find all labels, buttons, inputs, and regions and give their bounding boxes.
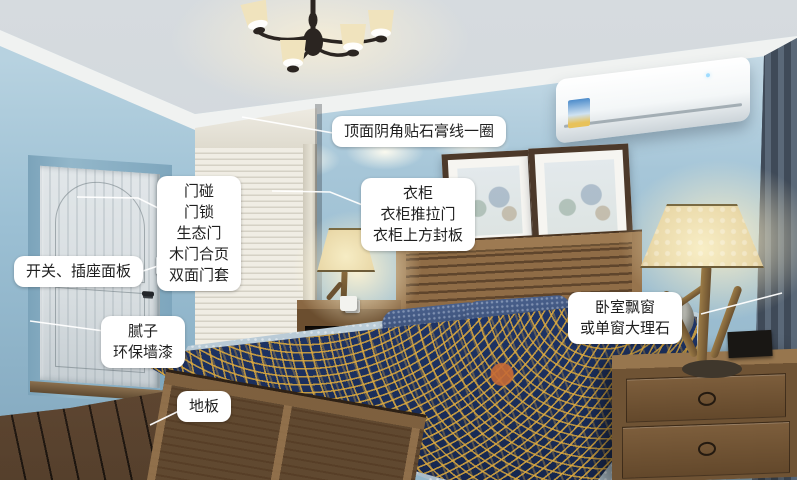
ac-led-light: [706, 73, 710, 77]
right-lamp-base: [682, 360, 742, 378]
wall-art-print: [544, 159, 618, 239]
callout-text: 门碰: [169, 181, 229, 202]
callout-wall-paint: 腻子 环保墙漆: [101, 316, 185, 368]
mug: [340, 296, 357, 311]
door-lock-handle: [142, 291, 154, 297]
callout-text: 双面门套: [169, 265, 229, 286]
callout-floor: 地板: [177, 391, 231, 422]
callout-text: 衣柜上方封板: [373, 225, 463, 246]
callout-text: 木门合页: [169, 244, 229, 265]
radio-box: [727, 330, 772, 358]
callout-text: 地板: [189, 398, 219, 415]
callout-text: 环保墙漆: [113, 342, 173, 363]
callout-text: 衣柜推拉门: [373, 204, 463, 225]
callout-text: 卧室飘窗: [580, 297, 670, 318]
callout-door: 门碰 门锁 生态门 木门合页 双面门套: [157, 176, 241, 291]
callout-bay-window: 卧室飘窗 或单窗大理石: [568, 292, 682, 344]
callout-text: 顶面阴角贴石膏线一圈: [344, 123, 494, 140]
callout-text: 门锁: [169, 202, 229, 223]
callout-text: 开关、插座面板: [26, 263, 131, 280]
callout-switch-panel: 开关、插座面板: [14, 256, 143, 287]
callout-wardrobe: 衣柜 衣柜推拉门 衣柜上方封板: [361, 178, 475, 251]
callout-text: 或单窗大理石: [580, 318, 670, 339]
callout-ceiling-molding: 顶面阴角贴石膏线一圈: [332, 116, 506, 147]
annotated-bedroom-photo: 顶面阴角贴石膏线一圈 门碰 门锁 生态门 木门合页 双面门套 开关、插座面板 腻…: [0, 0, 797, 480]
callout-text: 生态门: [169, 223, 229, 244]
ac-energy-sticker: [568, 98, 590, 129]
callout-text: 腻子: [113, 321, 173, 342]
ac-vent: [564, 103, 742, 128]
callout-text: 衣柜: [373, 183, 463, 204]
